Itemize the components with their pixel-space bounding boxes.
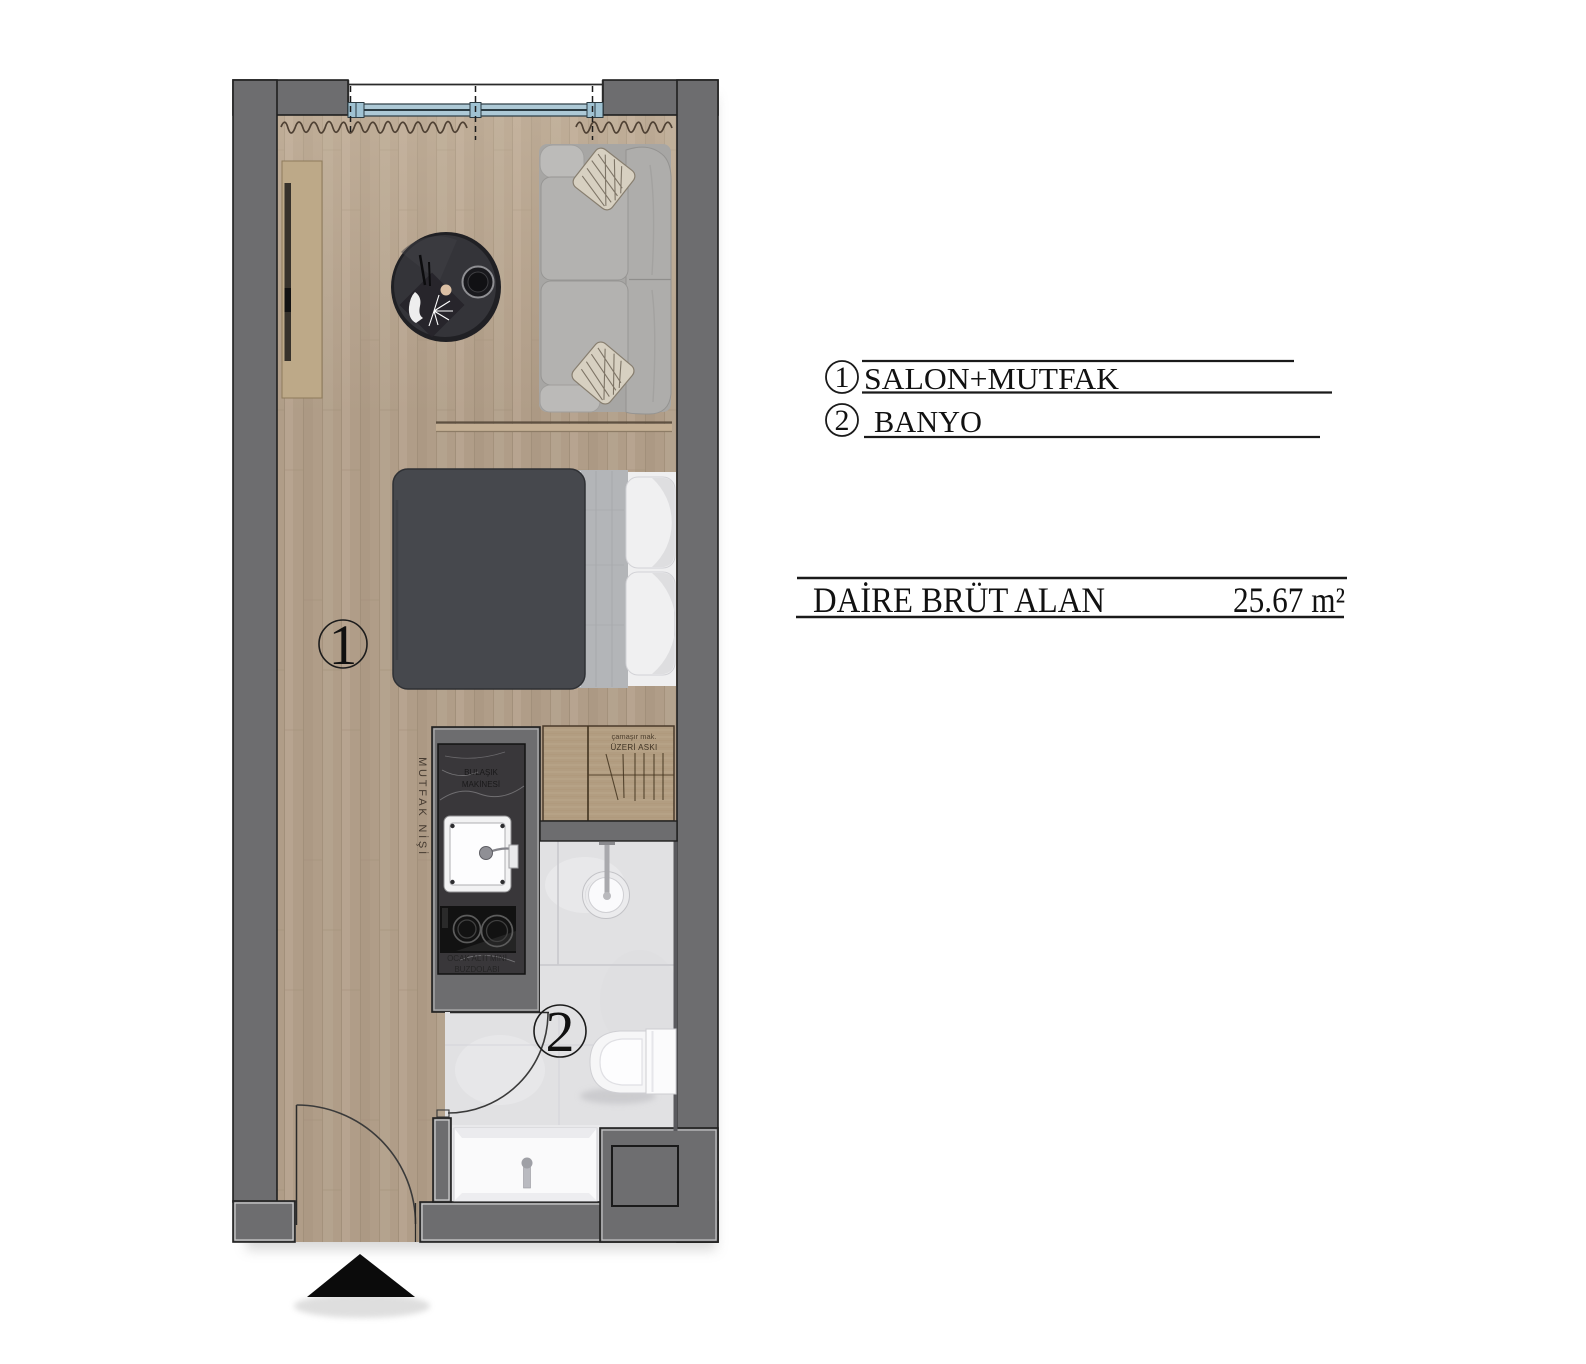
svg-text:2: 2 (835, 404, 850, 437)
svg-text:MAKİNESİ: MAKİNESİ (462, 780, 500, 789)
svg-text:BANYO: BANYO (874, 404, 982, 439)
svg-text:SALON+MUTFAK: SALON+MUTFAK (864, 361, 1120, 396)
svg-text:OCAK ALTI MİNİ: OCAK ALTI MİNİ (447, 954, 507, 963)
svg-text:BUZDOLABI: BUZDOLABI (454, 965, 499, 974)
svg-text:25.67 m²: 25.67 m² (1233, 580, 1345, 620)
svg-text:DAİRE BRÜT ALAN: DAİRE BRÜT ALAN (813, 580, 1105, 620)
svg-text:MUTFAK NİŞİ: MUTFAK NİŞİ (416, 757, 429, 857)
svg-text:1: 1 (329, 614, 358, 677)
svg-text:2: 2 (546, 999, 575, 1064)
svg-text:ÜZERİ ASKI: ÜZERİ ASKI (610, 743, 657, 752)
svg-text:çamaşır mak.: çamaşır mak. (611, 732, 656, 741)
svg-text:1: 1 (835, 361, 850, 394)
svg-text:BULAŞIK: BULAŞIK (464, 768, 498, 777)
